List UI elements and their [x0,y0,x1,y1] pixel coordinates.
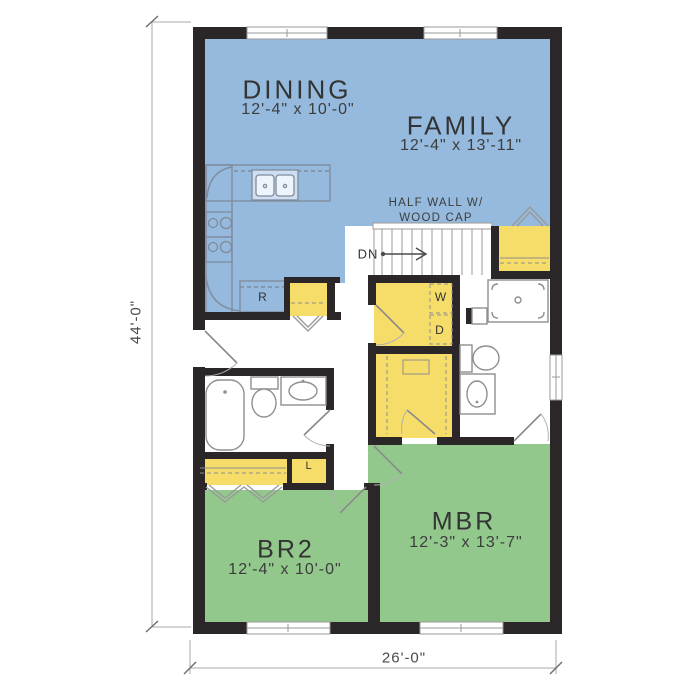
window-top-left [247,27,327,39]
window-right-bath [550,355,562,400]
linen-label: L [305,460,312,472]
room-dims-mbr: 12'-3" x 13'-7" [409,534,522,552]
washer-label: W [435,290,447,304]
dryer-label: D [435,323,445,337]
toilet-icon-master [460,345,499,372]
vanity-sink-icon-master [460,374,495,414]
half-wall-note-line1: HALF WALL W/ [389,197,484,209]
overall-width-dimension: 26'-0" [382,650,426,667]
shower-icon [488,280,548,322]
room-dims-br2: 12'-4" x 10'-0" [228,561,341,579]
window-top-right [424,27,497,39]
refrigerator-label: R [258,290,268,304]
stairs-dn-label: DN [358,247,379,262]
window-bottom-right [420,622,503,634]
vanity-sink-icon [281,377,326,405]
room-dims-dining: 12'-4" x 10'-0" [241,101,354,119]
toilet-icon [251,377,278,417]
half-wall-note-line2: WOOD CAP [399,212,473,224]
room-dims-family: 12'-4" x 13'-11" [400,137,522,155]
room-label-mbr: MBR [432,508,497,537]
overall-depth-dimension: 44'-0" [128,300,145,344]
floor-plan: DINING 12'-4" x 10'-0" FAMILY 12'-4" x 1… [0,0,700,700]
kitchen-sink-icon [252,170,298,200]
window-bottom-left [247,622,330,634]
